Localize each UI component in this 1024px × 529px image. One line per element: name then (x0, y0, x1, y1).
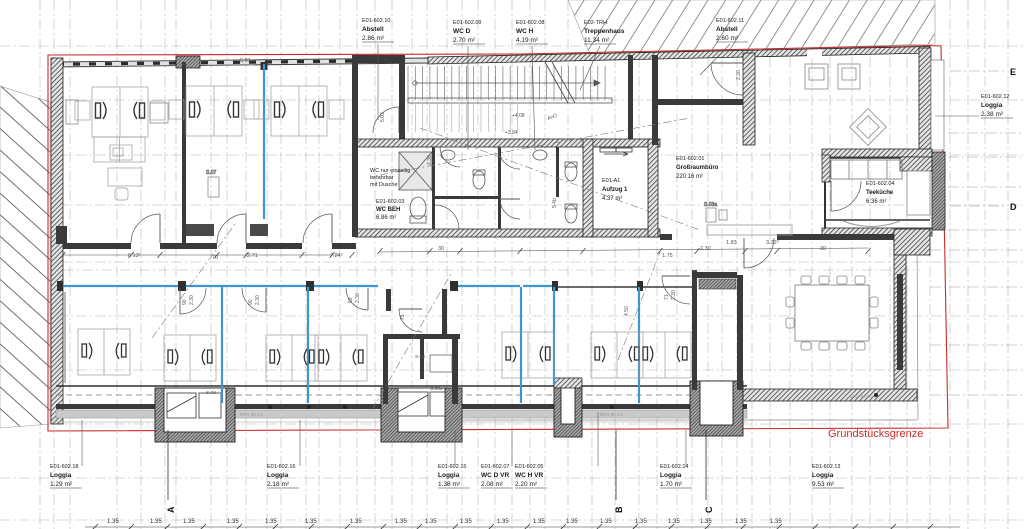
svg-text:WC D VR: WC D VR (481, 472, 509, 479)
svg-text:1.35: 1.35 (533, 519, 545, 525)
svg-text:B: B (614, 506, 624, 513)
svg-text:30: 30 (438, 246, 444, 252)
svg-text:1.35: 1.35 (700, 519, 712, 525)
svg-text:S.08: S.08 (206, 390, 216, 396)
svg-text:1.35: 1.35 (668, 519, 680, 525)
svg-text:6.86 m²: 6.86 m² (376, 215, 396, 221)
svg-text:2.30: 2.30 (255, 295, 261, 305)
svg-text:Loggia: Loggia (812, 472, 834, 479)
svg-text:1.70 m²: 1.70 m² (660, 481, 683, 488)
svg-text:WC nur einseitig: WC nur einseitig (370, 168, 410, 174)
svg-text:90: 90 (248, 299, 254, 305)
svg-text:4.50: 4.50 (624, 306, 630, 316)
svg-text:Loggia: Loggia (438, 472, 460, 479)
svg-text:S.08: S.08 (415, 354, 425, 360)
svg-text:6.36 m²: 6.36 m² (866, 199, 886, 205)
svg-text:Treppenhaus: Treppenhaus (584, 28, 625, 35)
svg-text:E01-602.10: E01-602.10 (362, 18, 390, 24)
svg-text:5.01: 5.01 (240, 58, 251, 64)
svg-text:befahrbar: befahrbar (370, 175, 394, 181)
svg-text:2.38 m²: 2.38 m² (981, 111, 1004, 118)
svg-text:1.35: 1.35 (770, 519, 782, 525)
svg-text:Loggia: Loggia (660, 472, 682, 479)
svg-text:S.03a: S.03a (704, 202, 717, 208)
svg-text:E01-602.05: E01-602.05 (515, 464, 543, 470)
svg-text:1.35: 1.35 (305, 519, 317, 525)
svg-text:1.35: 1.35 (265, 519, 277, 525)
svg-text:220.16 m²: 220.16 m² (676, 174, 703, 180)
svg-text:1.35: 1.35 (566, 519, 578, 525)
svg-text:70: 70 (212, 255, 218, 261)
svg-text:E: E (1010, 67, 1016, 77)
svg-text:Aufzug 1: Aufzug 1 (602, 187, 628, 193)
svg-text:S.08a: S.08a (430, 386, 443, 392)
svg-text:Teeküche: Teeküche (866, 190, 894, 196)
svg-text:2.08 m²: 2.08 m² (481, 481, 504, 488)
svg-text:3.22³: 3.22³ (766, 240, 779, 246)
svg-text:BRH 90 cm: BRH 90 cm (850, 394, 873, 399)
svg-text:1.35: 1.35 (150, 519, 162, 525)
svg-text:E01-602.07: E01-602.07 (481, 464, 509, 470)
svg-text:1.35: 1.35 (635, 519, 647, 525)
svg-text:2.30: 2.30 (671, 290, 677, 300)
svg-text:1.35: 1.35 (350, 519, 362, 525)
svg-text:E01-602.01: E01-602.01 (676, 156, 704, 162)
svg-text:E01-602.09: E01-602.09 (453, 20, 481, 26)
svg-text:2.86 m²: 2.86 m² (362, 35, 385, 42)
svg-text:E01-602.03: E01-602.03 (376, 199, 404, 205)
svg-text:1.35: 1.35 (183, 519, 195, 525)
svg-text:2.30: 2.30 (427, 155, 433, 165)
svg-text:2.30: 2.30 (700, 246, 711, 252)
svg-text:1.38 m²: 1.38 m² (438, 481, 461, 488)
svg-text:9.53 m²: 9.53 m² (812, 481, 835, 488)
svg-text:C: C (704, 506, 714, 513)
svg-text:Abstell: Abstell (362, 26, 384, 33)
svg-text:WC H: WC H (516, 28, 534, 35)
svg-text:S.07: S.07 (206, 170, 217, 176)
svg-text:Loggia: Loggia (267, 472, 289, 479)
svg-text:BRH 90 cm: BRH 90 cm (240, 412, 263, 417)
svg-text:1.35: 1.35 (107, 519, 119, 525)
svg-text:E01-A1: E01-A1 (602, 178, 620, 184)
svg-text:E01-602.16: E01-602.16 (267, 464, 295, 470)
svg-text:A: A (166, 506, 176, 513)
svg-text:E01-602.12: E01-602.12 (981, 94, 1009, 100)
svg-text:7.24³: 7.24³ (330, 253, 343, 259)
svg-text:1.75: 1.75 (662, 253, 673, 259)
svg-text:1.35: 1.35 (395, 519, 407, 525)
svg-text:6.13¹: 6.13¹ (128, 253, 141, 259)
svg-text:90: 90 (182, 299, 188, 305)
svg-text:2.18 m²: 2.18 m² (267, 481, 290, 488)
svg-text:2.20 m²: 2.20 m² (515, 481, 538, 488)
svg-text:30: 30 (820, 246, 826, 252)
svg-text:11.34 m²: 11.34 m² (584, 37, 610, 44)
svg-text:1.35: 1.35 (497, 519, 509, 525)
svg-text:WC BEH: WC BEH (376, 207, 400, 213)
svg-text:Grundstücksgrenze: Grundstücksgrenze (828, 428, 923, 440)
svg-text:E01-602.18: E01-602.18 (50, 464, 78, 470)
svg-text:71: 71 (664, 294, 670, 300)
svg-text:Großraumbüro: Großraumbüro (676, 165, 719, 171)
svg-text:Abstell: Abstell (716, 26, 738, 33)
svg-text:5.03: 5.03 (380, 112, 386, 122)
svg-text:E01-602.15: E01-602.15 (438, 464, 466, 470)
svg-text:1.29 m²: 1.29 m² (50, 481, 73, 488)
svg-text:WC D: WC D (453, 28, 471, 35)
svg-text:2.71: 2.71 (247, 253, 258, 259)
svg-text:WC H VR: WC H VR (515, 472, 543, 479)
svg-text:E01-602.04: E01-602.04 (866, 181, 894, 187)
svg-text:mit Dusche: mit Dusche (370, 182, 398, 188)
svg-text:1.35: 1.35 (425, 519, 437, 525)
svg-text:2.30: 2.30 (189, 295, 195, 305)
svg-text:+3.84: +3.84 (505, 130, 518, 136)
svg-text:D: D (1010, 202, 1017, 212)
svg-text:Loggia: Loggia (50, 472, 72, 479)
svg-text:BRH 90 cm: BRH 90 cm (600, 412, 623, 417)
svg-text:2.30: 2.30 (736, 70, 742, 80)
svg-text:E01-602.13: E01-602.13 (812, 464, 840, 470)
svg-text:1.83: 1.83 (726, 240, 737, 246)
svg-text:4.19 m²: 4.19 m² (516, 37, 539, 44)
svg-text:4.37 m²: 4.37 m² (602, 196, 622, 202)
svg-text:E01-602.08: E01-602.08 (516, 20, 544, 26)
svg-text:2.60 m²: 2.60 m² (716, 35, 739, 42)
svg-text:75: 75 (400, 314, 406, 320)
svg-text:E02-TRH: E02-TRH (584, 20, 607, 26)
svg-text:5.4b: 5.4b (552, 198, 558, 208)
svg-text:1.35: 1.35 (460, 519, 472, 525)
svg-text:2.30: 2.30 (355, 293, 361, 303)
svg-text:E01-602.11: E01-602.11 (716, 18, 744, 24)
svg-text:Loggia: Loggia (981, 102, 1003, 109)
svg-text:E01-602.14: E01-602.14 (660, 464, 688, 470)
svg-text:2.70 m²: 2.70 m² (453, 37, 476, 44)
svg-text:1.35: 1.35 (227, 519, 239, 525)
svg-text:90: 90 (348, 297, 354, 303)
svg-text:+4.08: +4.08 (512, 113, 525, 119)
